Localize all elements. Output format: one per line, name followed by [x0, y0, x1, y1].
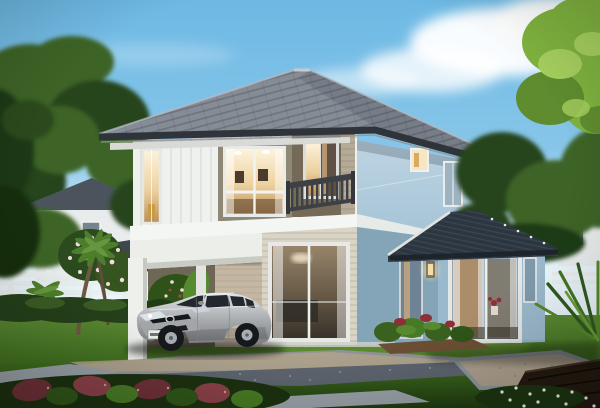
house-exterior-photo: Daytime photorealistic rendering of a mo…: [0, 0, 600, 408]
vignette: [0, 0, 600, 408]
rendered-scene: [0, 0, 600, 408]
